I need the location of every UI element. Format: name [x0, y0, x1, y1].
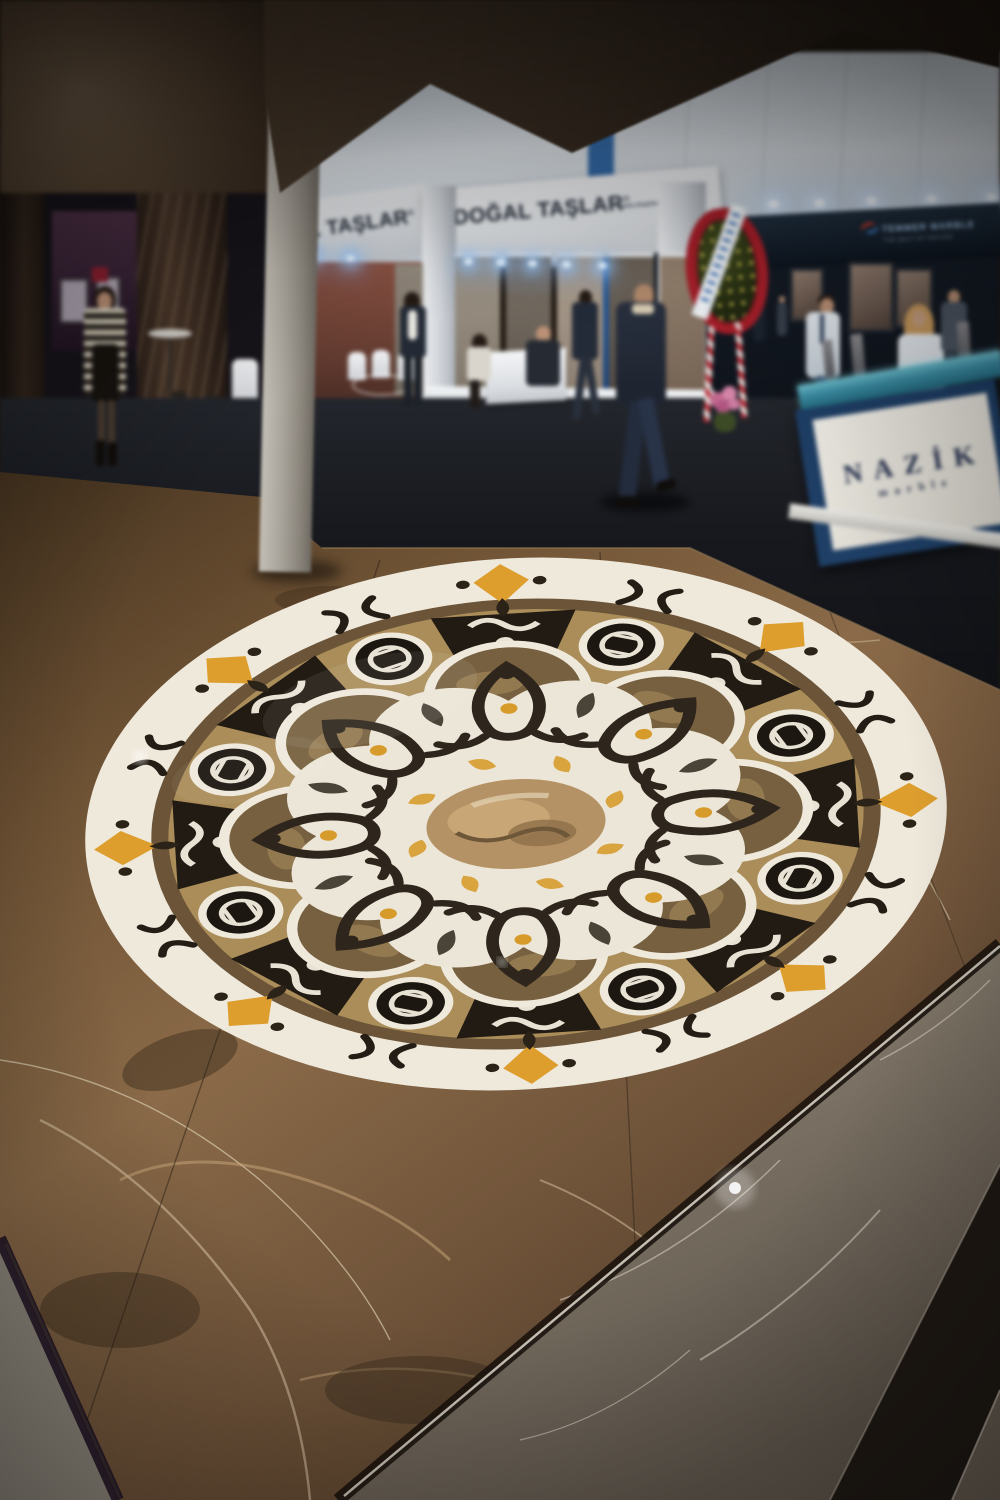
canopy-layer [0, 0, 1000, 1500]
booth-canopy [0, 0, 1000, 200]
marble-fair-photo: TEMMER MARBLE THE BEST OF NATURE AL TAŞL… [0, 0, 1000, 1500]
